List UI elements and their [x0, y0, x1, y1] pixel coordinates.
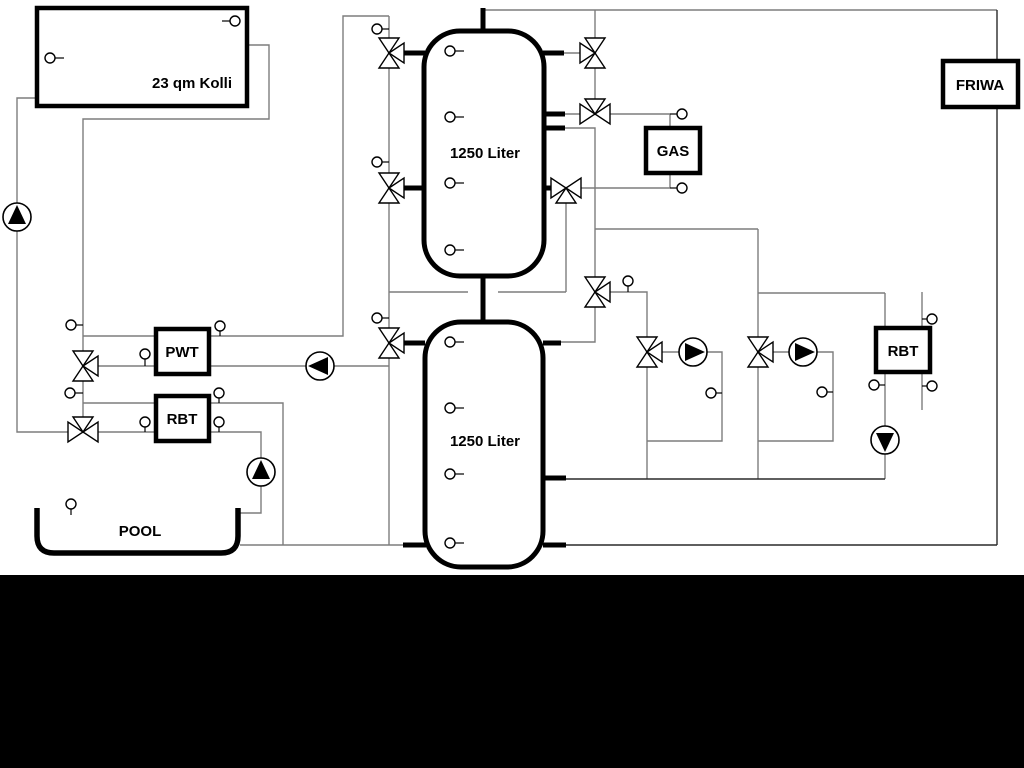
schematic-canvas: 23 qm Kolli 1250 Liter 1250 Liter PWT RB…	[0, 0, 1024, 768]
bottom-black-band	[0, 575, 1024, 768]
pump-icon-circuit-1	[679, 338, 707, 366]
three-way-valve-icon-collector-supply	[73, 351, 98, 381]
pwt-label: PWT	[165, 344, 198, 361]
pool-label: POOL	[119, 523, 162, 540]
hydraulic-diagram: 23 qm Kolli 1250 Liter 1250 Liter PWT RB…	[0, 0, 1024, 768]
temperature-sensor-icon	[140, 349, 150, 366]
pump-icon-solar	[3, 203, 31, 231]
tank-top-label: 1250 Liter	[450, 145, 520, 162]
gas-label: GAS	[657, 143, 690, 160]
temperature-sensor-icon	[706, 388, 722, 398]
tank-bottom-label: 1250 Liter	[450, 433, 520, 450]
pump-icon-pool	[247, 458, 275, 486]
three-way-valve-icon-gas-supply	[580, 99, 610, 124]
temperature-sensor-icon	[372, 24, 389, 34]
three-way-valve-icon-tank-top-right-upper	[580, 38, 605, 68]
three-way-valve-icon-heating-circuit-2	[748, 337, 773, 367]
temperature-sensor-icon	[66, 320, 83, 330]
temperature-sensor-icon	[140, 417, 150, 432]
three-way-valve-icon-heating-distributor	[585, 277, 610, 307]
pump-icon-circuit-2	[789, 338, 817, 366]
temperature-sensor-icon	[214, 417, 224, 432]
temperature-sensor-icon	[922, 381, 937, 391]
temperature-sensor-icon	[372, 157, 389, 167]
pump-icon-rbt-right	[871, 426, 899, 454]
temperature-sensor-icon	[869, 380, 885, 390]
temperature-sensor-icon	[922, 314, 937, 324]
friwa-label: FRIWA	[956, 77, 1004, 94]
temperature-sensor-icon	[670, 183, 687, 193]
rbt-right-label: RBT	[888, 343, 919, 360]
temperature-sensor-icon	[817, 387, 833, 397]
rbt-left-label: RBT	[167, 411, 198, 428]
three-way-valve-icon-tank-top-left-upper	[379, 38, 404, 68]
temperature-sensor-icon	[372, 313, 389, 323]
three-way-valve-icon-collector-return	[68, 417, 98, 442]
temperature-sensor-icon	[215, 321, 225, 336]
three-way-valve-icon-tank-top-left-lower	[379, 173, 404, 203]
pipe-mid-distribution	[561, 229, 922, 479]
temperature-sensor-icon	[65, 388, 83, 398]
pump-icon-pwt	[306, 352, 334, 380]
three-way-valve-icon-heating-circuit-1	[637, 337, 662, 367]
three-way-valve-icon-tank-bottom-left	[379, 328, 404, 358]
three-way-valve-icon-gas-return	[551, 178, 581, 203]
temperature-sensor-icon	[214, 388, 224, 403]
temperature-sensor-icon	[670, 109, 687, 119]
collector-label: 23 qm Kolli	[152, 75, 232, 92]
temperature-sensor-icon	[66, 499, 76, 515]
temperature-sensor-icon	[623, 276, 633, 292]
